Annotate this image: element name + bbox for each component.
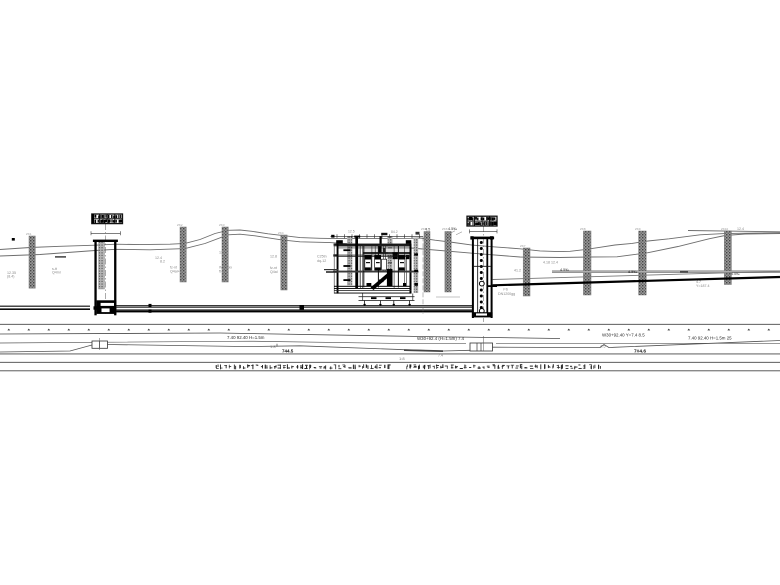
svg-text:ZK8: ZK8: [580, 227, 586, 231]
svg-text:7.40 92.40 H=1.5m: 7.40 92.40 H=1.5m: [227, 335, 265, 340]
svg-text:ZK3: ZK3: [219, 223, 225, 227]
svg-text:4.5‰: 4.5‰: [448, 227, 457, 231]
svg-text:W30+92.40 Y=7.4 8.5: W30+92.40 Y=7.4 8.5: [602, 333, 645, 338]
svg-text:12.8: 12.8: [270, 255, 277, 259]
svg-text:ft-js: ft-js: [219, 270, 225, 274]
svg-text:13.2: 13.2: [219, 251, 226, 255]
svg-text:ZK4: ZK4: [278, 231, 284, 235]
svg-text:4.5‰: 4.5‰: [628, 270, 637, 274]
svg-text:C25tn: C25tn: [317, 255, 327, 259]
svg-text:7.40 92.40 H=1.5m 25: 7.40 92.40 H=1.5m 25: [688, 336, 732, 341]
svg-text:ZK7: ZK7: [520, 244, 526, 248]
svg-text:8.2: 8.2: [160, 260, 165, 264]
svg-text:12.4: 12.4: [737, 227, 744, 231]
svg-text:7#4.6: 7#4.6: [634, 349, 646, 355]
svg-text:4.5‰: 4.5‰: [560, 268, 569, 272]
svg-text:4.5‰: 4.5‰: [731, 272, 740, 276]
svg-text:4.18 12.4: 4.18 12.4: [543, 261, 558, 265]
svg-text:ZK2: ZK2: [177, 223, 183, 227]
svg-text:1:8: 1:8: [399, 356, 405, 361]
svg-text:Q4al+pl: Q4al+pl: [170, 270, 183, 274]
svg-text:(8.4): (8.4): [7, 275, 14, 279]
svg-text:ZK10: ZK10: [721, 227, 729, 231]
svg-text:dq-12: dq-12: [317, 259, 326, 263]
svg-text:744.5: 744.5: [282, 349, 294, 354]
svg-text:ZK6: ZK6: [442, 227, 448, 231]
svg-text:Q4ml: Q4ml: [52, 271, 61, 275]
svg-text:41.2: 41.2: [514, 269, 521, 273]
svg-text:4.5: 4.5: [600, 344, 606, 349]
svg-text:Q4al: Q4al: [270, 270, 278, 274]
svg-text:ZK1: ZK1: [26, 232, 32, 236]
svg-text:12.5: 12.5: [348, 229, 355, 233]
svg-text:Y=187.4: Y=187.4: [696, 284, 710, 288]
svg-text:i=6: i=6: [503, 288, 508, 292]
svg-text:7.4: 7.4: [438, 354, 443, 358]
svg-text:ZK9: ZK9: [635, 227, 641, 231]
svg-text:W30+92.4 (H=1.5m) 7.4: W30+92.4 (H=1.5m) 7.4: [417, 336, 465, 341]
svg-text:DN1200gg: DN1200gg: [498, 292, 515, 296]
svg-text:1:8: 1:8: [270, 344, 276, 349]
svg-text:4.5: 4.5: [425, 228, 430, 232]
svg-text:84.2: 84.2: [391, 230, 398, 234]
